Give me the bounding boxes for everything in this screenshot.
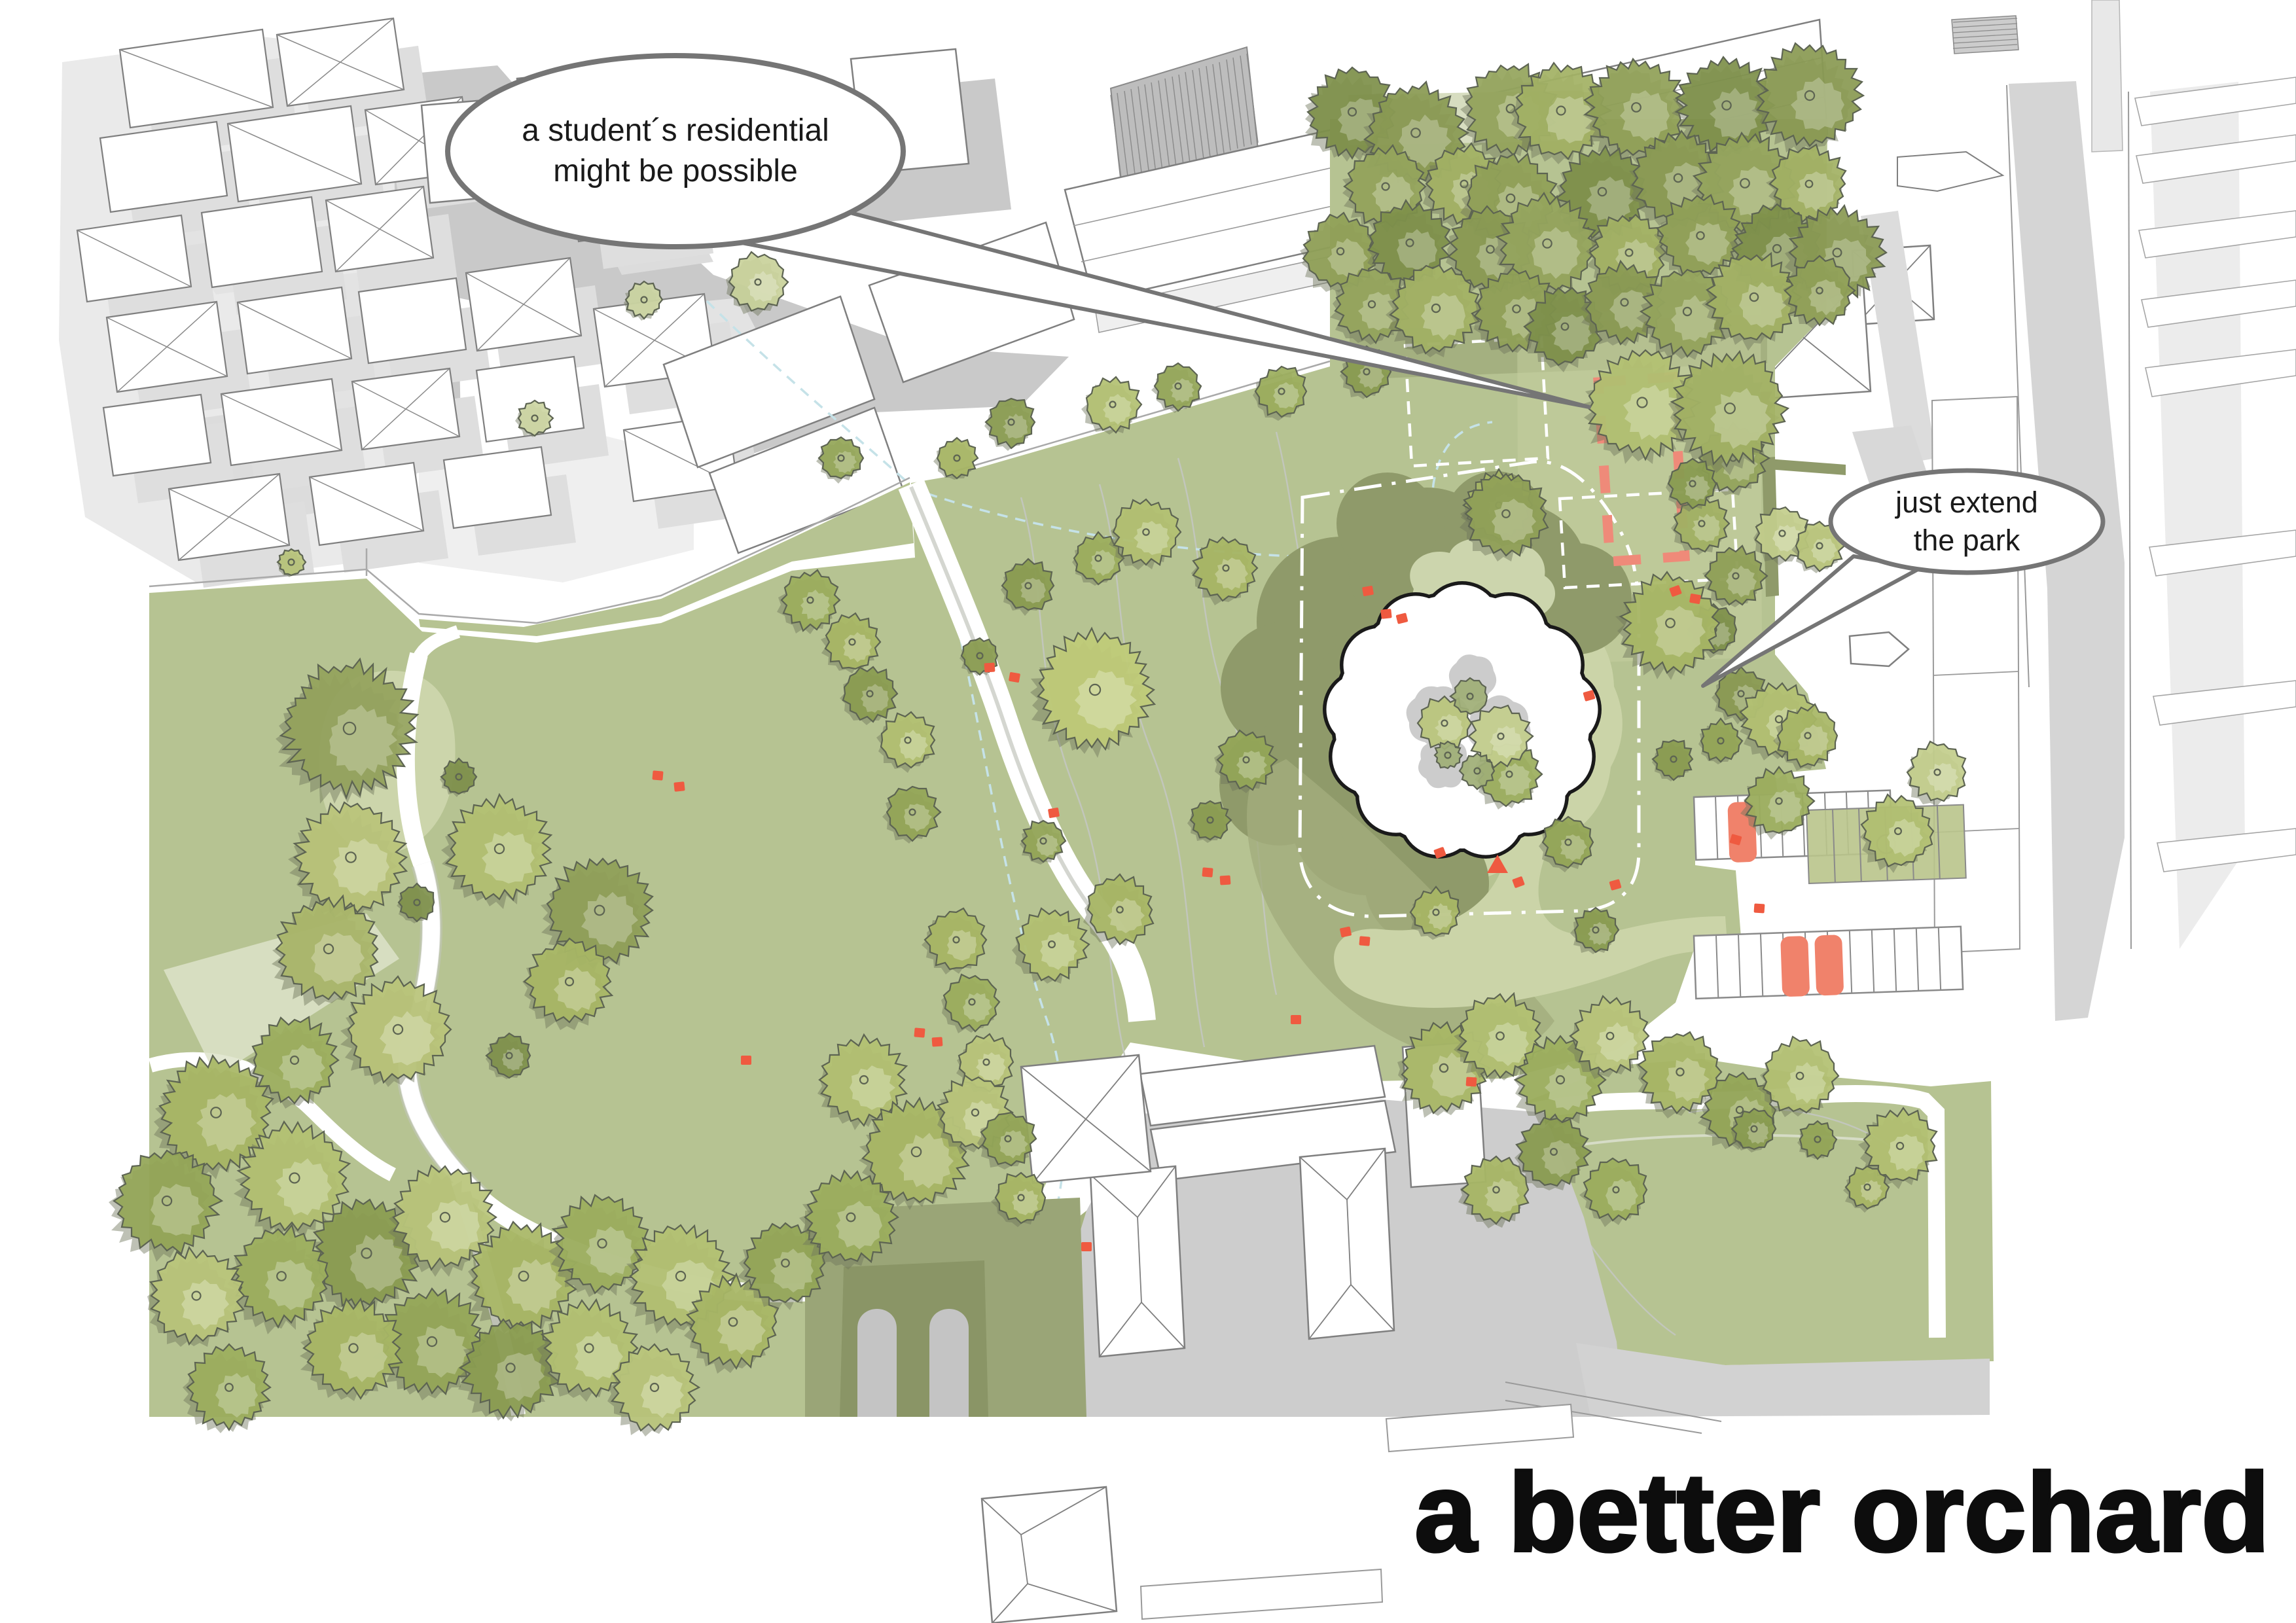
svg-text:a student´s residential: a student´s residential xyxy=(522,113,829,148)
svg-text:the park: the park xyxy=(1914,524,2020,557)
svg-text:a better orchard: a better orchard xyxy=(1414,1450,2270,1575)
svg-text:might be possible: might be possible xyxy=(553,154,798,188)
svg-text:just extend: just extend xyxy=(1894,486,2038,519)
